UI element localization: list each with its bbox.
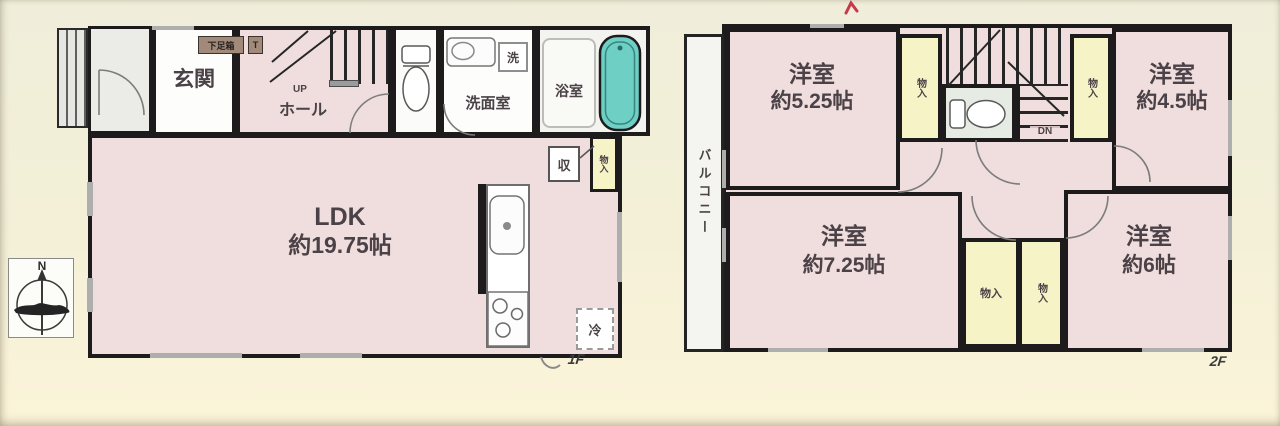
entrance-steps xyxy=(57,28,88,128)
window-marker xyxy=(87,278,93,312)
stairs-down-label: DN xyxy=(1030,126,1060,137)
shoe-cabinet-tag: 下足箱 xyxy=(198,36,244,54)
red-mark xyxy=(846,3,857,13)
room-washroom-label: 洗面室 xyxy=(448,96,528,113)
room-se-size: 約6帖 xyxy=(1104,254,1194,277)
balcony-label: バルコニー xyxy=(695,148,714,238)
room-hall-label: ホール xyxy=(258,102,348,120)
laundry-space-box: 洗 xyxy=(498,42,528,72)
window-marker xyxy=(150,353,242,358)
window-marker xyxy=(1142,348,1204,352)
entrance-porch xyxy=(88,26,152,134)
window-marker xyxy=(722,228,726,262)
shoe-cabinet-tag-t: T xyxy=(248,36,263,54)
floor1-label: 1F xyxy=(555,352,597,367)
stairs-up-label: UP xyxy=(288,84,312,95)
closet-1f: 物入 xyxy=(590,136,618,192)
stairs-2f-treads-upper xyxy=(946,28,1068,84)
room-ne-size: 約4.5帖 xyxy=(1114,90,1230,113)
kitchen-counter xyxy=(486,184,530,348)
room-ldk-name: LDK xyxy=(240,204,440,232)
window-marker xyxy=(152,26,194,30)
room-nw-size: 約5.25帖 xyxy=(737,90,887,113)
window-marker xyxy=(810,24,844,28)
storage-box: 収 xyxy=(548,146,580,182)
floor-plan-image: 玄関 下足箱 T UP ホール 洗 洗面室 浴室 LDK 約19.75帖 収 物… xyxy=(0,0,1280,426)
room-bathroom-label: 浴室 xyxy=(541,84,597,99)
room-sw-name: 洋室 xyxy=(784,224,904,249)
window-marker xyxy=(768,348,828,352)
compass-north-label: N xyxy=(9,260,75,273)
kitchen-partition-wall xyxy=(478,184,486,294)
room-genkan-label: 玄関 xyxy=(162,68,226,91)
balcony: バルコニー xyxy=(684,34,724,352)
stairs-1f-landing xyxy=(329,80,359,87)
room-toilet-1f xyxy=(392,26,440,136)
room-sw-size: 約7.25帖 xyxy=(768,254,920,277)
closet-2f-ne: 物入 xyxy=(1070,34,1112,142)
floor2-label: 2F xyxy=(1197,354,1239,369)
room-se-name: 洋室 xyxy=(1104,224,1194,249)
closet-2f-center-right: 物入 xyxy=(1018,238,1064,348)
room-toilet-2f xyxy=(942,84,1016,142)
fridge-box: 冷 xyxy=(576,308,614,350)
room-ne-name: 洋室 xyxy=(1122,62,1222,87)
stairs-1f-treads xyxy=(330,30,388,84)
window-marker xyxy=(617,212,622,282)
closet-2f-nw: 物入 xyxy=(898,34,942,142)
window-marker xyxy=(300,353,362,358)
closet-2f-center-left: 物入 xyxy=(962,238,1020,348)
room-ldk-size: 約19.75帖 xyxy=(228,233,452,258)
window-marker xyxy=(722,150,726,188)
compass: N xyxy=(8,258,74,338)
window-marker xyxy=(87,182,93,216)
window-marker xyxy=(1228,216,1232,260)
room-nw-name: 洋室 xyxy=(752,62,872,87)
